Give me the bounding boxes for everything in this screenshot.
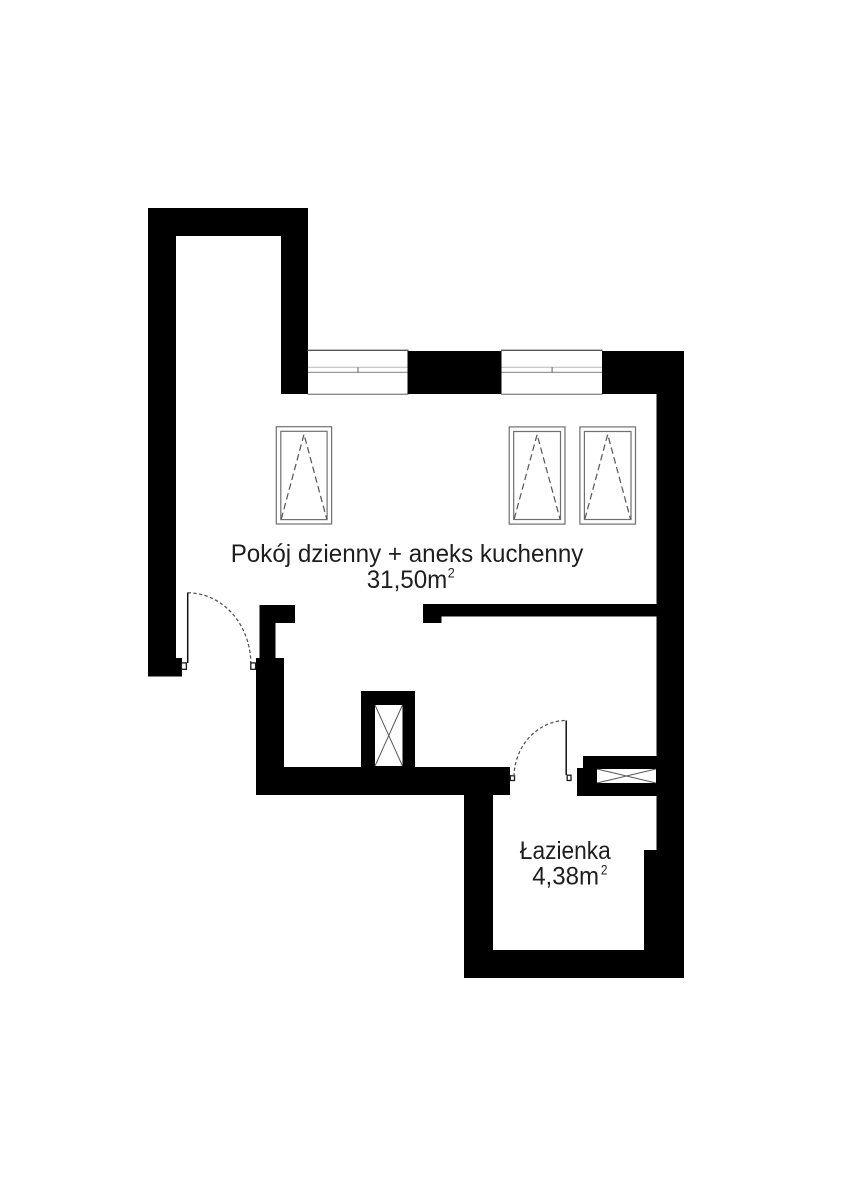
svg-text:31,50m: 31,50m — [367, 566, 448, 594]
svg-text:Pokój dzienny + aneks kuchenny: Pokój dzienny + aneks kuchenny — [231, 540, 584, 568]
svg-text:2: 2 — [448, 566, 455, 581]
svg-text:4,38m: 4,38m — [532, 863, 599, 891]
svg-text:Łazienka: Łazienka — [520, 837, 611, 865]
svg-text:2: 2 — [601, 863, 608, 878]
